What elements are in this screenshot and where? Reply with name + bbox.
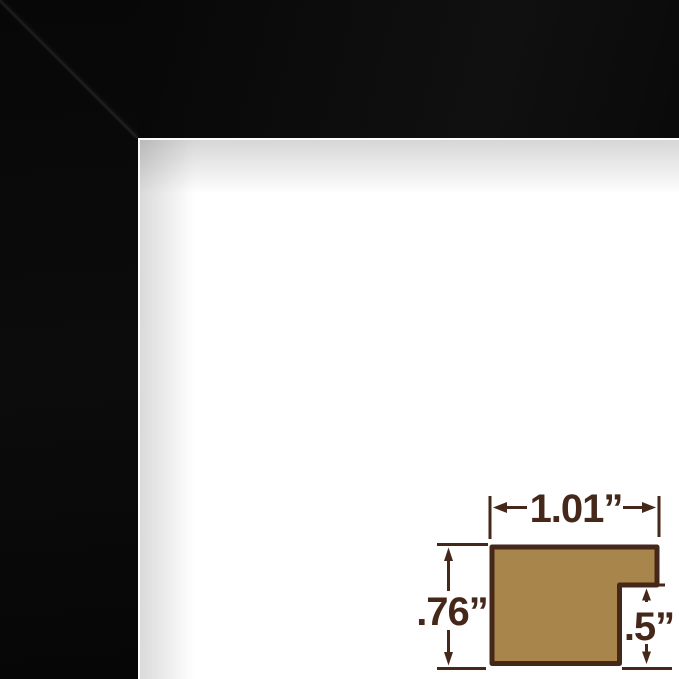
product-image: 1.01” .76” .5”	[0, 0, 679, 679]
rabbet-dimension-label: .5”	[624, 605, 674, 649]
arrow-down-icon	[444, 652, 453, 666]
arrow-left-icon	[493, 502, 507, 513]
height-dimension-label: .76”	[416, 590, 488, 634]
arrow-up-icon	[642, 589, 651, 601]
width-dimension-label: 1.01”	[530, 487, 623, 531]
profile-dimension-diagram: 1.01” .76” .5”	[0, 0, 679, 679]
arrow-down-icon	[642, 652, 651, 665]
arrow-right-icon	[642, 502, 656, 513]
arrow-up-icon	[444, 548, 453, 562]
